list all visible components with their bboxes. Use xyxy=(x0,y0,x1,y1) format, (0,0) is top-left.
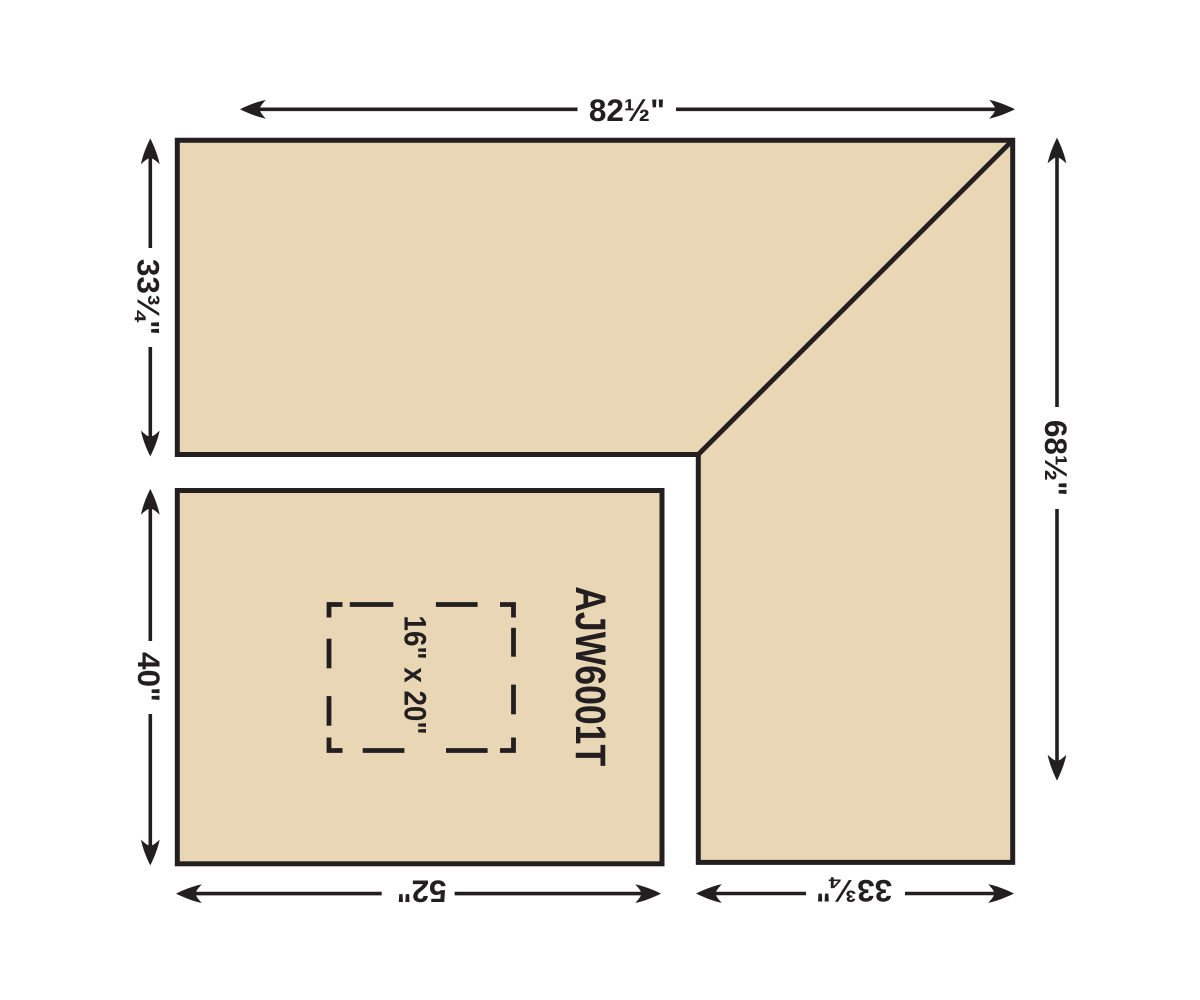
svg-text:82½": 82½" xyxy=(589,92,665,128)
svg-text:68½": 68½" xyxy=(1038,420,1074,496)
svg-text:33¾": 33¾" xyxy=(131,259,167,335)
svg-text:16" x 20": 16" x 20" xyxy=(398,616,434,735)
svg-text:52": 52" xyxy=(397,874,447,910)
svg-text:AJW6001T: AJW6001T xyxy=(566,586,613,766)
svg-text:33¾": 33¾" xyxy=(816,873,892,909)
svg-text:40": 40" xyxy=(131,652,167,702)
